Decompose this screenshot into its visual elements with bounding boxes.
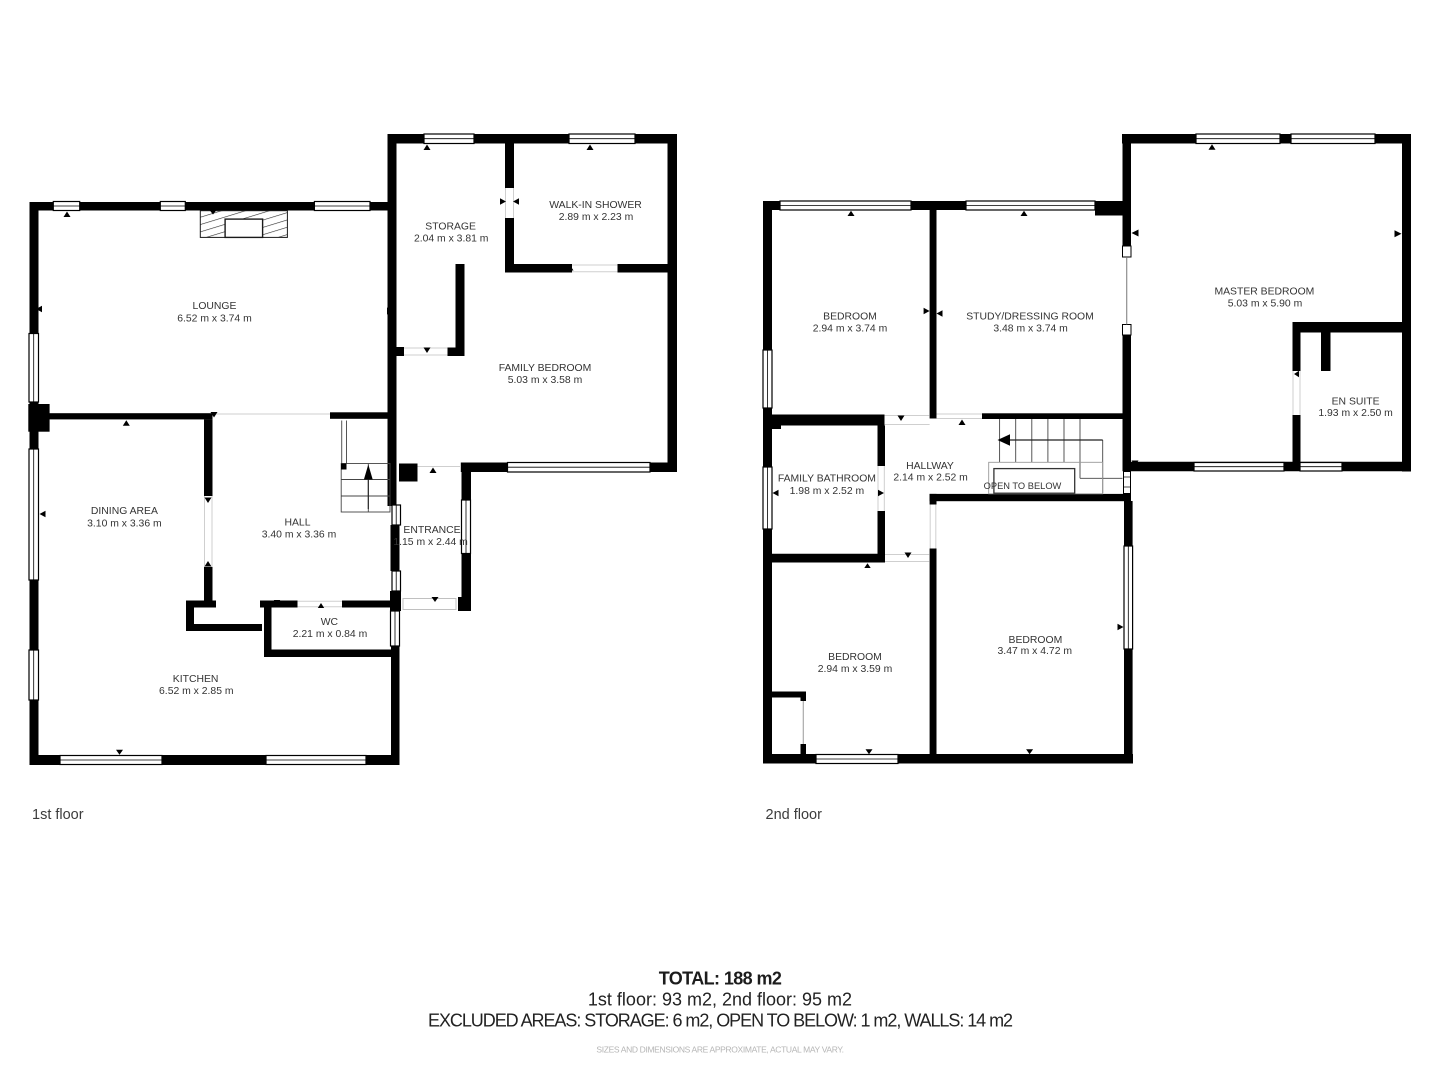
svg-text:1.98 m x 2.52 m: 1.98 m x 2.52 m <box>790 486 865 497</box>
svg-text:BEDROOM: BEDROOM <box>828 652 882 663</box>
svg-text:TOTAL: 188 m2: TOTAL: 188 m2 <box>659 969 782 989</box>
svg-text:3.48 m x 3.74 m: 3.48 m x 3.74 m <box>993 324 1068 335</box>
svg-text:2.94 m x 3.74 m: 2.94 m x 3.74 m <box>813 324 888 335</box>
svg-text:1.15 m x 2.44 m: 1.15 m x 2.44 m <box>393 537 468 548</box>
svg-text:STORAGE: STORAGE <box>425 222 476 233</box>
svg-text:WC: WC <box>321 617 339 628</box>
svg-text:ENTRANCE: ENTRANCE <box>403 525 460 536</box>
svg-text:SIZES AND DIMENSIONS ARE APPRO: SIZES AND DIMENSIONS ARE APPROXIMATE, AC… <box>596 1045 843 1055</box>
svg-text:3.47 m x 4.72 m: 3.47 m x 4.72 m <box>998 646 1073 657</box>
svg-text:6.52 m x 3.74 m: 6.52 m x 3.74 m <box>177 313 252 324</box>
svg-text:2nd floor: 2nd floor <box>766 807 823 823</box>
svg-text:FAMILY BEDROOM: FAMILY BEDROOM <box>499 363 592 374</box>
svg-text:KITCHEN: KITCHEN <box>173 674 219 685</box>
svg-text:2.04 m x 3.81 m: 2.04 m x 3.81 m <box>414 234 489 245</box>
svg-text:HALL: HALL <box>285 517 311 528</box>
svg-text:HALLWAY: HALLWAY <box>906 461 954 472</box>
svg-text:FAMILY BATHROOM: FAMILY BATHROOM <box>778 474 876 485</box>
svg-text:2.94 m x 3.59 m: 2.94 m x 3.59 m <box>818 664 893 675</box>
svg-text:DINING AREA: DINING AREA <box>91 506 158 517</box>
svg-text:5.03 m x 3.58 m: 5.03 m x 3.58 m <box>508 375 583 386</box>
svg-text:WALK-IN SHOWER: WALK-IN SHOWER <box>549 200 642 211</box>
svg-text:6.52 m x 2.85 m: 6.52 m x 2.85 m <box>159 686 234 697</box>
svg-text:1.93 m x 2.50 m: 1.93 m x 2.50 m <box>1318 408 1393 419</box>
svg-text:EXCLUDED AREAS: STORAGE: 6 m2,: EXCLUDED AREAS: STORAGE: 6 m2, OPEN TO B… <box>428 1011 1013 1031</box>
svg-text:EN SUITE: EN SUITE <box>1332 397 1380 408</box>
svg-text:OPEN TO BELOW: OPEN TO BELOW <box>984 481 1062 491</box>
svg-text:LOUNGE: LOUNGE <box>193 301 237 312</box>
svg-text:STUDY/DRESSING ROOM: STUDY/DRESSING ROOM <box>966 311 1094 322</box>
svg-text:BEDROOM: BEDROOM <box>823 311 877 322</box>
svg-text:BEDROOM: BEDROOM <box>1009 635 1063 646</box>
svg-text:1st floor: 1st floor <box>32 807 84 823</box>
svg-text:3.10 m x 3.36 m: 3.10 m x 3.36 m <box>87 518 162 529</box>
svg-text:5.03 m x 5.90 m: 5.03 m x 5.90 m <box>1228 299 1303 310</box>
svg-text:2.14 m x 2.52 m: 2.14 m x 2.52 m <box>893 472 968 483</box>
svg-text:2.89 m x 2.23 m: 2.89 m x 2.23 m <box>559 212 634 223</box>
svg-text:3.40 m x 3.36 m: 3.40 m x 3.36 m <box>262 530 337 541</box>
svg-text:2.21 m x 0.84 m: 2.21 m x 0.84 m <box>293 629 368 640</box>
svg-text:1st floor: 93 m2, 2nd floor: 9: 1st floor: 93 m2, 2nd floor: 95 m2 <box>588 990 852 1010</box>
svg-text:MASTER BEDROOM: MASTER BEDROOM <box>1214 287 1314 298</box>
